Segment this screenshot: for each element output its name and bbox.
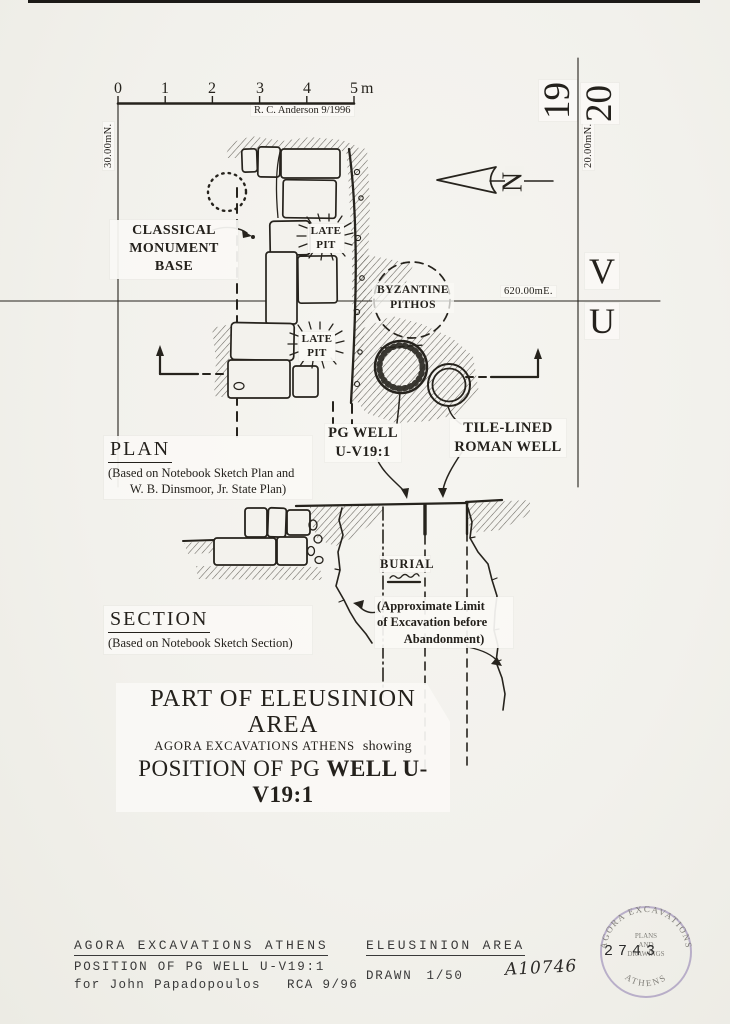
- scanned-drawing-sheet: 0 1 2 3 4 5 m N: [0, 0, 730, 1024]
- title-line3-prefix: POSITION OF PG: [138, 756, 326, 781]
- grid-column-19: 19: [539, 80, 577, 121]
- pg-well-label: PG WELL U-V19:1: [325, 424, 401, 462]
- grid-coord-620e: 620.00mE.: [501, 286, 556, 297]
- classical-monument-base-label: CLASSICAL MONUMENT BASE: [110, 220, 238, 279]
- dotted-pit-circle: [208, 173, 246, 211]
- scale-unit-label: m: [361, 80, 374, 97]
- footer-left-heading: AGORA EXCAVATIONS ATHENS: [74, 938, 328, 956]
- plan-note: (Based on Notebook Sketch Plan and: [108, 466, 308, 482]
- title-line2-caps: AGORA EXCAVATIONS ATHENS: [154, 739, 355, 753]
- label-line: TILE-LINED: [450, 419, 566, 438]
- grid-row-v: V: [585, 253, 619, 289]
- footer-right-heading: ELEUSINION AREA: [366, 938, 525, 956]
- title-line3: POSITION OF PG WELL U-V19:1: [122, 756, 444, 807]
- scale-tick-label: 5: [350, 80, 358, 97]
- stamp-center-line: PLANS: [635, 932, 657, 940]
- footer-scale-value: 1/50: [427, 969, 464, 983]
- grid-coord-30n: 30.00mN.: [103, 122, 114, 170]
- grid-column-20: 20: [581, 83, 619, 124]
- label-line: PIT: [308, 238, 344, 252]
- footer-left-line2: POSITION OF PG WELL U-V19:1: [74, 960, 358, 974]
- late-pit-label-2: LATE PIT: [299, 332, 335, 361]
- excavation-limit-note: (Approximate Limit of Excavation before …: [375, 597, 513, 648]
- svg-text:ATHENS: ATHENS: [623, 972, 668, 988]
- note-line: Abandonment): [377, 631, 511, 647]
- section-heading: SECTION: [108, 608, 210, 633]
- plan-note: W. B. Dinsmoor, Jr. State Plan): [108, 482, 308, 498]
- label-line: ROMAN WELL: [450, 438, 566, 457]
- note-line: (Approximate Limit: [377, 598, 511, 614]
- section-note: (Based on Notebook Sketch Section): [108, 636, 308, 652]
- byzantine-pithos-label: BYZANTINE PITHOS: [372, 283, 454, 313]
- stamp-number: 2743: [604, 943, 660, 960]
- label-line: BYZANTINE: [372, 283, 454, 298]
- stamp-arc-bottom: ATHENS: [623, 972, 668, 988]
- note-line: of Excavation before: [377, 614, 511, 630]
- label-line: LATE: [308, 224, 344, 238]
- title-line2: AGORA EXCAVATIONS ATHENSshowing: [122, 739, 444, 755]
- footer-left-line3: for John PapadopoulosRCA 9/96: [74, 978, 358, 992]
- north-label: N: [497, 172, 528, 192]
- plan-heading-block: PLAN (Based on Notebook Sketch Plan and …: [104, 436, 312, 499]
- burial-sketch: [388, 574, 420, 582]
- scale-tick-label: 1: [161, 80, 169, 97]
- label-line: MONUMENT BASE: [110, 240, 238, 276]
- title-block: PART OF ELEUSINION AREA AGORA EXCAVATION…: [116, 683, 450, 812]
- footer-left-block: AGORA EXCAVATIONS ATHENS POSITION OF PG …: [74, 936, 358, 992]
- scale-tick-label: 2: [208, 80, 216, 97]
- scale-tick-label: 4: [303, 80, 311, 97]
- section-cut-symbol-right: [466, 348, 542, 377]
- footer-drawn-scale: DRAWN1/50: [366, 969, 525, 983]
- scale-tick-label: 0: [114, 80, 122, 97]
- title-line1: PART OF ELEUSINION AREA: [122, 686, 444, 737]
- label-line: PG WELL: [325, 424, 401, 443]
- section-heading-block: SECTION (Based on Notebook Sketch Sectio…: [104, 606, 312, 654]
- label-line: CLASSICAL: [110, 222, 238, 240]
- label-line: PIT: [299, 346, 335, 360]
- scale-bar: 0 1 2 3 4 5 m: [114, 80, 374, 104]
- label-line: U-V19:1: [325, 443, 401, 462]
- roman-well-label: TILE-LINED ROMAN WELL: [450, 419, 566, 457]
- label-line: PITHOS: [372, 298, 454, 313]
- label-line: LATE: [299, 332, 335, 346]
- north-arrow-icon: N: [437, 166, 553, 196]
- footer-right-block: ELEUSINION AREA DRAWN1/50: [366, 936, 525, 983]
- footer-initials-date: RCA 9/96: [287, 978, 358, 992]
- plan-heading: PLAN: [108, 438, 172, 463]
- title-line2-showing: showing: [363, 739, 412, 754]
- burial-label: BURIAL: [380, 556, 430, 572]
- catalog-number: A10746: [505, 956, 578, 980]
- footer-drawn-label: DRAWN: [366, 969, 413, 983]
- scale-tick-label: 3: [256, 80, 264, 97]
- late-pit-label-1: LATE PIT: [308, 224, 344, 253]
- grid-row-u: U: [585, 303, 619, 339]
- grid-coord-20n: 20.00mN.: [583, 122, 594, 170]
- credit-label: R. C. Anderson 9/1996: [251, 105, 354, 116]
- footer-for-credit: for John Papadopoulos: [74, 978, 261, 992]
